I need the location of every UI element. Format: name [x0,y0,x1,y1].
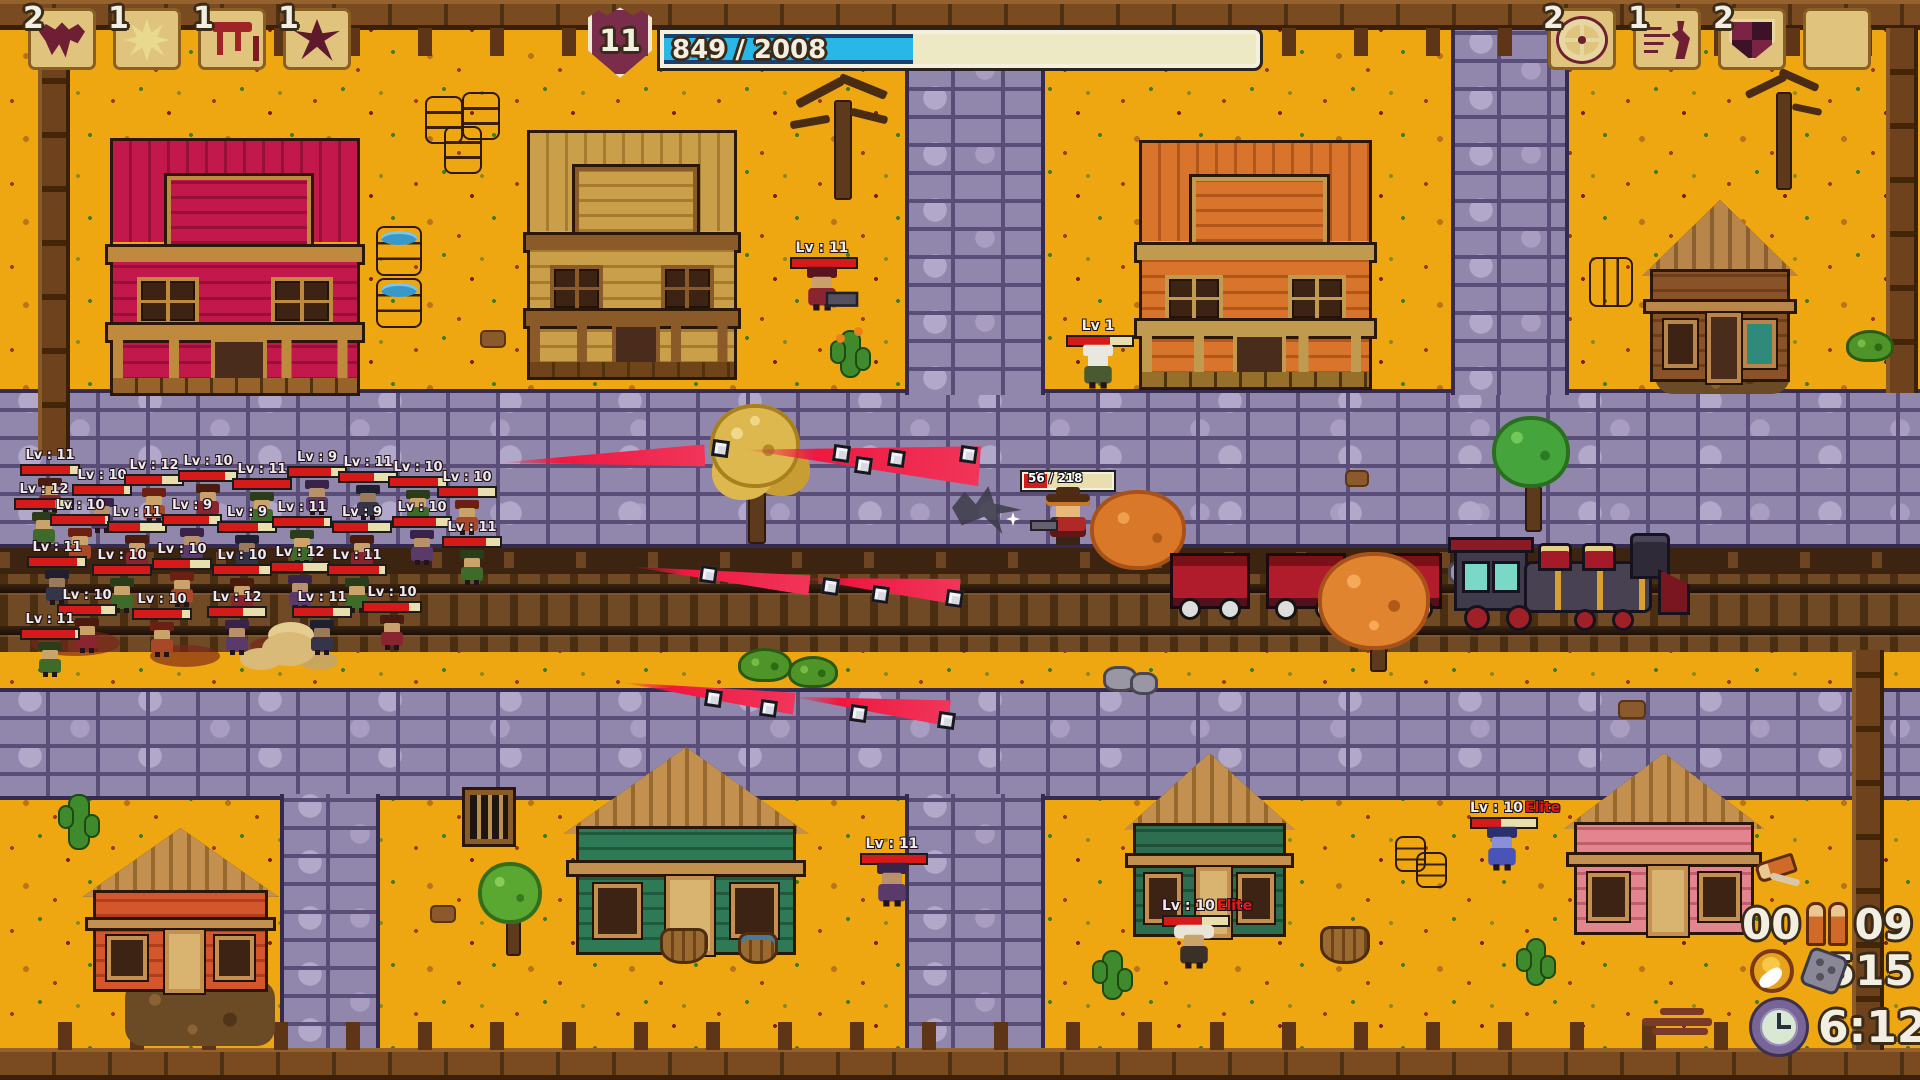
building-pink-house [1574,753,1754,935]
projectile-cube [937,711,956,730]
weapon-slot-4: 1 [283,8,351,70]
locomotive [1454,539,1690,639]
enemy-level-label: Lv : 10Elite [1162,898,1226,914]
enemy: Lv : 11 [790,240,854,305]
enemy-health-bar [207,606,267,618]
enemy-health-bar [124,474,184,486]
coin-counter: 515 [1750,946,1914,995]
enemy-health-bar [212,564,272,576]
enemy-level-label: Lv : 10 [360,585,424,600]
enemy: Lv 1 [1066,318,1130,383]
enemy-health-bar [442,536,502,548]
train-car [1170,553,1250,609]
enemy-level-label: Lv : 10 [435,470,499,485]
enemy-health-bar [270,561,330,573]
bucket [738,932,778,964]
enemy-level-label: Lv : 10 [210,548,274,563]
enemy-health-bar [132,608,192,620]
wheel-icon [1559,19,1605,61]
bottom-fence-posts [0,1022,1920,1050]
projectile-cube [759,699,778,718]
enemy-health-bar [27,556,87,568]
revolver-icon [1030,520,1058,531]
dirt-clump [1345,470,1369,487]
enemy-sprite [457,550,487,584]
level-badge: 11 [588,6,652,78]
starburst-icon [124,19,170,61]
projectile-cube [959,445,978,464]
enemy-health-bar [20,628,80,640]
enemy-health-bar [217,521,277,533]
water-barrel [376,278,422,328]
enemy-level-label: Lv : 11 [18,448,82,463]
enemy-level-label: Lv : 12 [205,590,269,605]
enemy-sprite [1175,925,1213,968]
enemy-health-bar [332,521,392,533]
dead-tree [790,70,890,196]
enemy-level-label: Lv : 10 [130,592,194,607]
building-cabin [93,828,268,992]
ammo-counter: 00 09 [1742,898,1913,950]
building-red-saloon [110,138,360,396]
barrel [444,126,482,174]
projectile-cube [704,689,723,708]
building-orange-saloon [1139,140,1372,390]
xp-bar: 849 / 2008 [660,30,1260,68]
horde-enemy: Lv : 12 [205,590,269,654]
enemy-health-bar [162,514,222,526]
enemy-sprite [873,863,911,906]
dirt-clump [430,905,456,923]
meat-icon [209,19,255,61]
green-tree [1488,416,1574,531]
weapon-slot-1: 2 [28,8,96,70]
player-health-text: 56 / 218 [1028,471,1083,485]
enemy: Lv : 10Elite [1470,800,1534,865]
enemy-health-bar [327,564,387,576]
bones [1660,1008,1704,1015]
item-slot-1: 2 [1548,8,1616,70]
clock-icon [1752,1000,1806,1054]
enemy-health-bar [362,601,422,613]
projectile-cube [854,456,873,475]
coin-icon [1750,949,1794,993]
enemy-sprite [1483,827,1521,870]
enemy-level-label: Lv : 10 [48,498,112,513]
basket [1320,926,1370,964]
projectile-cube [699,565,718,584]
enemy-level-label: Lv 1 [1066,318,1130,334]
bones [1652,1028,1708,1035]
projectile-cube [821,577,840,596]
enemy-health-bar [292,606,352,618]
timer: 6:12 [1752,1000,1920,1054]
enemy-level-label: Lv : 11 [25,540,89,555]
enemy-level-label: Lv : 11 [270,500,334,515]
golden-tree [700,400,810,545]
enemy-level-label: Lv : 11 [18,612,82,627]
bush [1846,330,1894,362]
enemy-level-label: Lv : 10 [150,542,214,557]
enemy-health-bar [272,516,332,528]
bat-icon [39,19,85,61]
cactus [1526,938,1546,986]
bullet-icon [1828,902,1848,946]
rock [1130,672,1158,695]
enemy-sprite [222,620,252,654]
top-right-road [1451,30,1569,395]
building-brown-house [1650,200,1790,382]
game-viewport[interactable]: Lv : 11Lv : 12Lv : 10Lv : 12Lv : 10Lv : … [0,0,1920,1080]
projectile-cube [871,585,890,604]
cactus [1102,950,1123,1000]
enemy-level-label: Lv : 9 [330,505,394,520]
barrel-on-side [1589,257,1633,307]
enemy-level-label: Lv : 10Elite [1470,800,1534,816]
bottom-fence [0,1048,1920,1080]
weapon-slot-2: 1 [113,8,181,70]
bottom-center-road [905,794,1045,1050]
enemy-level-label: Lv : 11 [290,590,354,605]
runner-icon [1644,19,1690,61]
bush [738,648,792,682]
cactus [840,330,861,378]
projectile-cube [832,444,851,463]
enemy-level-label: Lv : 11 [790,240,854,256]
horde-enemy: Lv : 11 [440,520,504,584]
top-center-road [905,30,1045,395]
bones [1642,1018,1712,1026]
dirt-clump [480,330,506,348]
horde-enemy: Lv : 11 [18,612,82,676]
dirt-clump [1618,700,1646,719]
enemy-sprite [147,622,177,656]
enemy-level-label: Lv : 12 [12,482,76,497]
orange-tree-front [1318,552,1436,670]
ammo-loaded: 00 [1742,900,1800,949]
enemy-health-bar [232,478,292,490]
raven-icon [294,19,340,61]
enemy-level-label: Lv : 11 [860,836,924,852]
projectile-cube [711,439,730,458]
horde-enemy: Lv : 11 [290,590,354,654]
enemy-level-label: Lv : 10 [55,588,119,603]
enemy-health-bar [152,558,212,570]
dead-tree [1742,66,1822,186]
basket [660,928,708,964]
horde-enemy: Lv : 10 [130,592,194,656]
enemy-health-bar [178,470,238,482]
projectile-cube [945,589,964,608]
enemy-sprite [307,620,337,654]
bullet-icon [1806,902,1826,946]
enemy: Lv : 11 [860,836,924,901]
cactus [68,794,90,850]
enemy-sprite [1079,345,1117,388]
enemy-level-label: Lv : 11 [440,520,504,535]
xp-bar-label: 849 / 2008 [672,35,826,65]
player-character: 56 / 218 [1020,472,1116,546]
elite-tag: Elite [1525,800,1560,816]
enemy-health-bar [437,486,497,498]
item-slot-4 [1803,8,1871,70]
projectile-cube [849,704,868,723]
enemy-level-label: Lv : 12 [268,545,332,560]
horde-enemy: Lv : 10 [360,585,424,649]
left-fence [38,28,70,456]
shield-icon [1729,19,1775,61]
item-slot-2: 1 [1633,8,1701,70]
bush [788,656,838,688]
ammo-reserve: 09 [1854,900,1912,949]
enemy-level-label: Lv : 10 [90,548,154,563]
water-barrel [376,226,422,276]
barrel [1416,852,1447,888]
enemy-sprite [803,267,841,310]
projectile-cube [887,449,906,468]
timer-value: 6:12 [1818,1002,1920,1053]
enemy-level-label: Lv : 11 [325,548,389,563]
enemy-health-bar [50,514,110,526]
enemy-sprite [35,642,65,676]
weapon-slot-3: 1 [198,8,266,70]
enemy: Lv : 10Elite [1162,898,1226,963]
item-slot-3: 2 [1718,8,1786,70]
player-sprite [1042,494,1094,546]
jail-window-prop [465,790,513,844]
enemy-health-bar [92,564,152,576]
bottom-left-road [280,794,380,1050]
enemy-health-bar [107,521,167,533]
building-tan-saloon [527,130,737,380]
enemy-sprite [377,615,407,649]
elite-tag: Elite [1217,898,1252,914]
level-value: 11 [599,24,641,59]
building-green-house-1 [576,747,796,955]
enemy-sprite [407,530,437,564]
small-green-tree [476,862,546,954]
